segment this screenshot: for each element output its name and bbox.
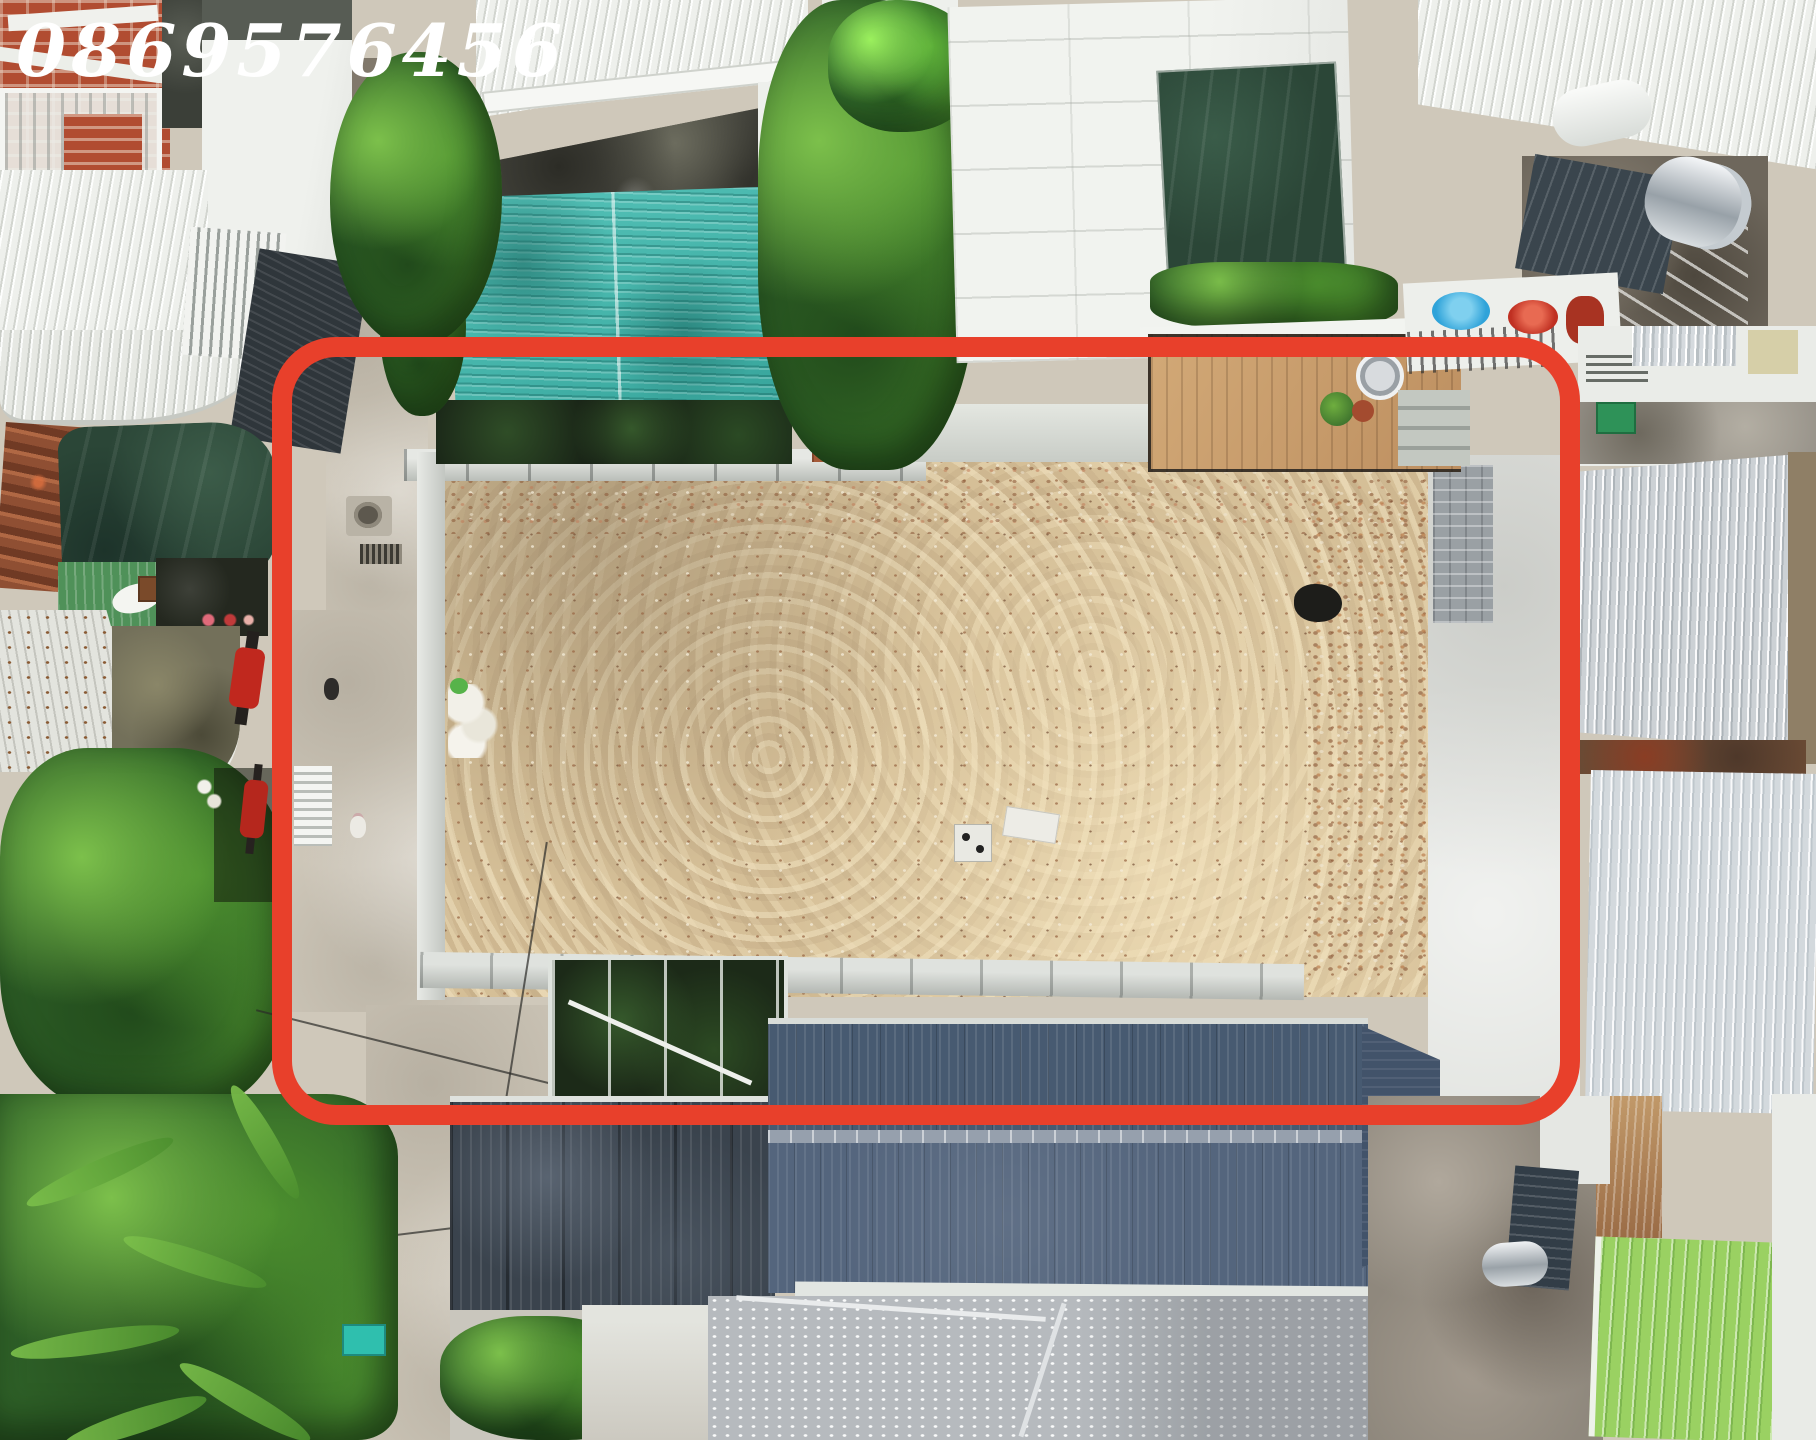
small-metal-roof — [1632, 326, 1736, 366]
teal-trash-bin — [342, 1324, 386, 1356]
cream-rooftop-box — [1748, 330, 1798, 374]
terrace-plants — [1150, 262, 1398, 328]
navy-roof-ridge — [768, 1130, 1368, 1143]
white-corrugated-roof-left — [0, 170, 208, 336]
weathered-roof-edge — [1788, 452, 1816, 764]
seated-figures — [196, 776, 224, 812]
brick-wall-patch — [64, 114, 142, 170]
phone-number-watermark: 0869576456 — [16, 6, 536, 96]
pale-corrugated-roof — [1585, 770, 1816, 1114]
red-highlight-rectangle — [272, 337, 1580, 1125]
gray-wall-strip — [582, 1305, 718, 1440]
green-crate — [1596, 402, 1636, 434]
aerial-photo: 0869576456 — [0, 0, 1816, 1440]
dark-corrugated-structure — [450, 1096, 775, 1322]
red-basin — [1508, 300, 1558, 334]
blue-basin — [1432, 292, 1490, 330]
white-building-bottom-right — [1772, 1094, 1816, 1440]
palm-tree — [330, 52, 502, 348]
rust-debris-band — [1576, 740, 1806, 774]
silver-corrugated-roof — [1576, 454, 1800, 750]
navy-tile-roof-lower-slope — [768, 1143, 1368, 1293]
